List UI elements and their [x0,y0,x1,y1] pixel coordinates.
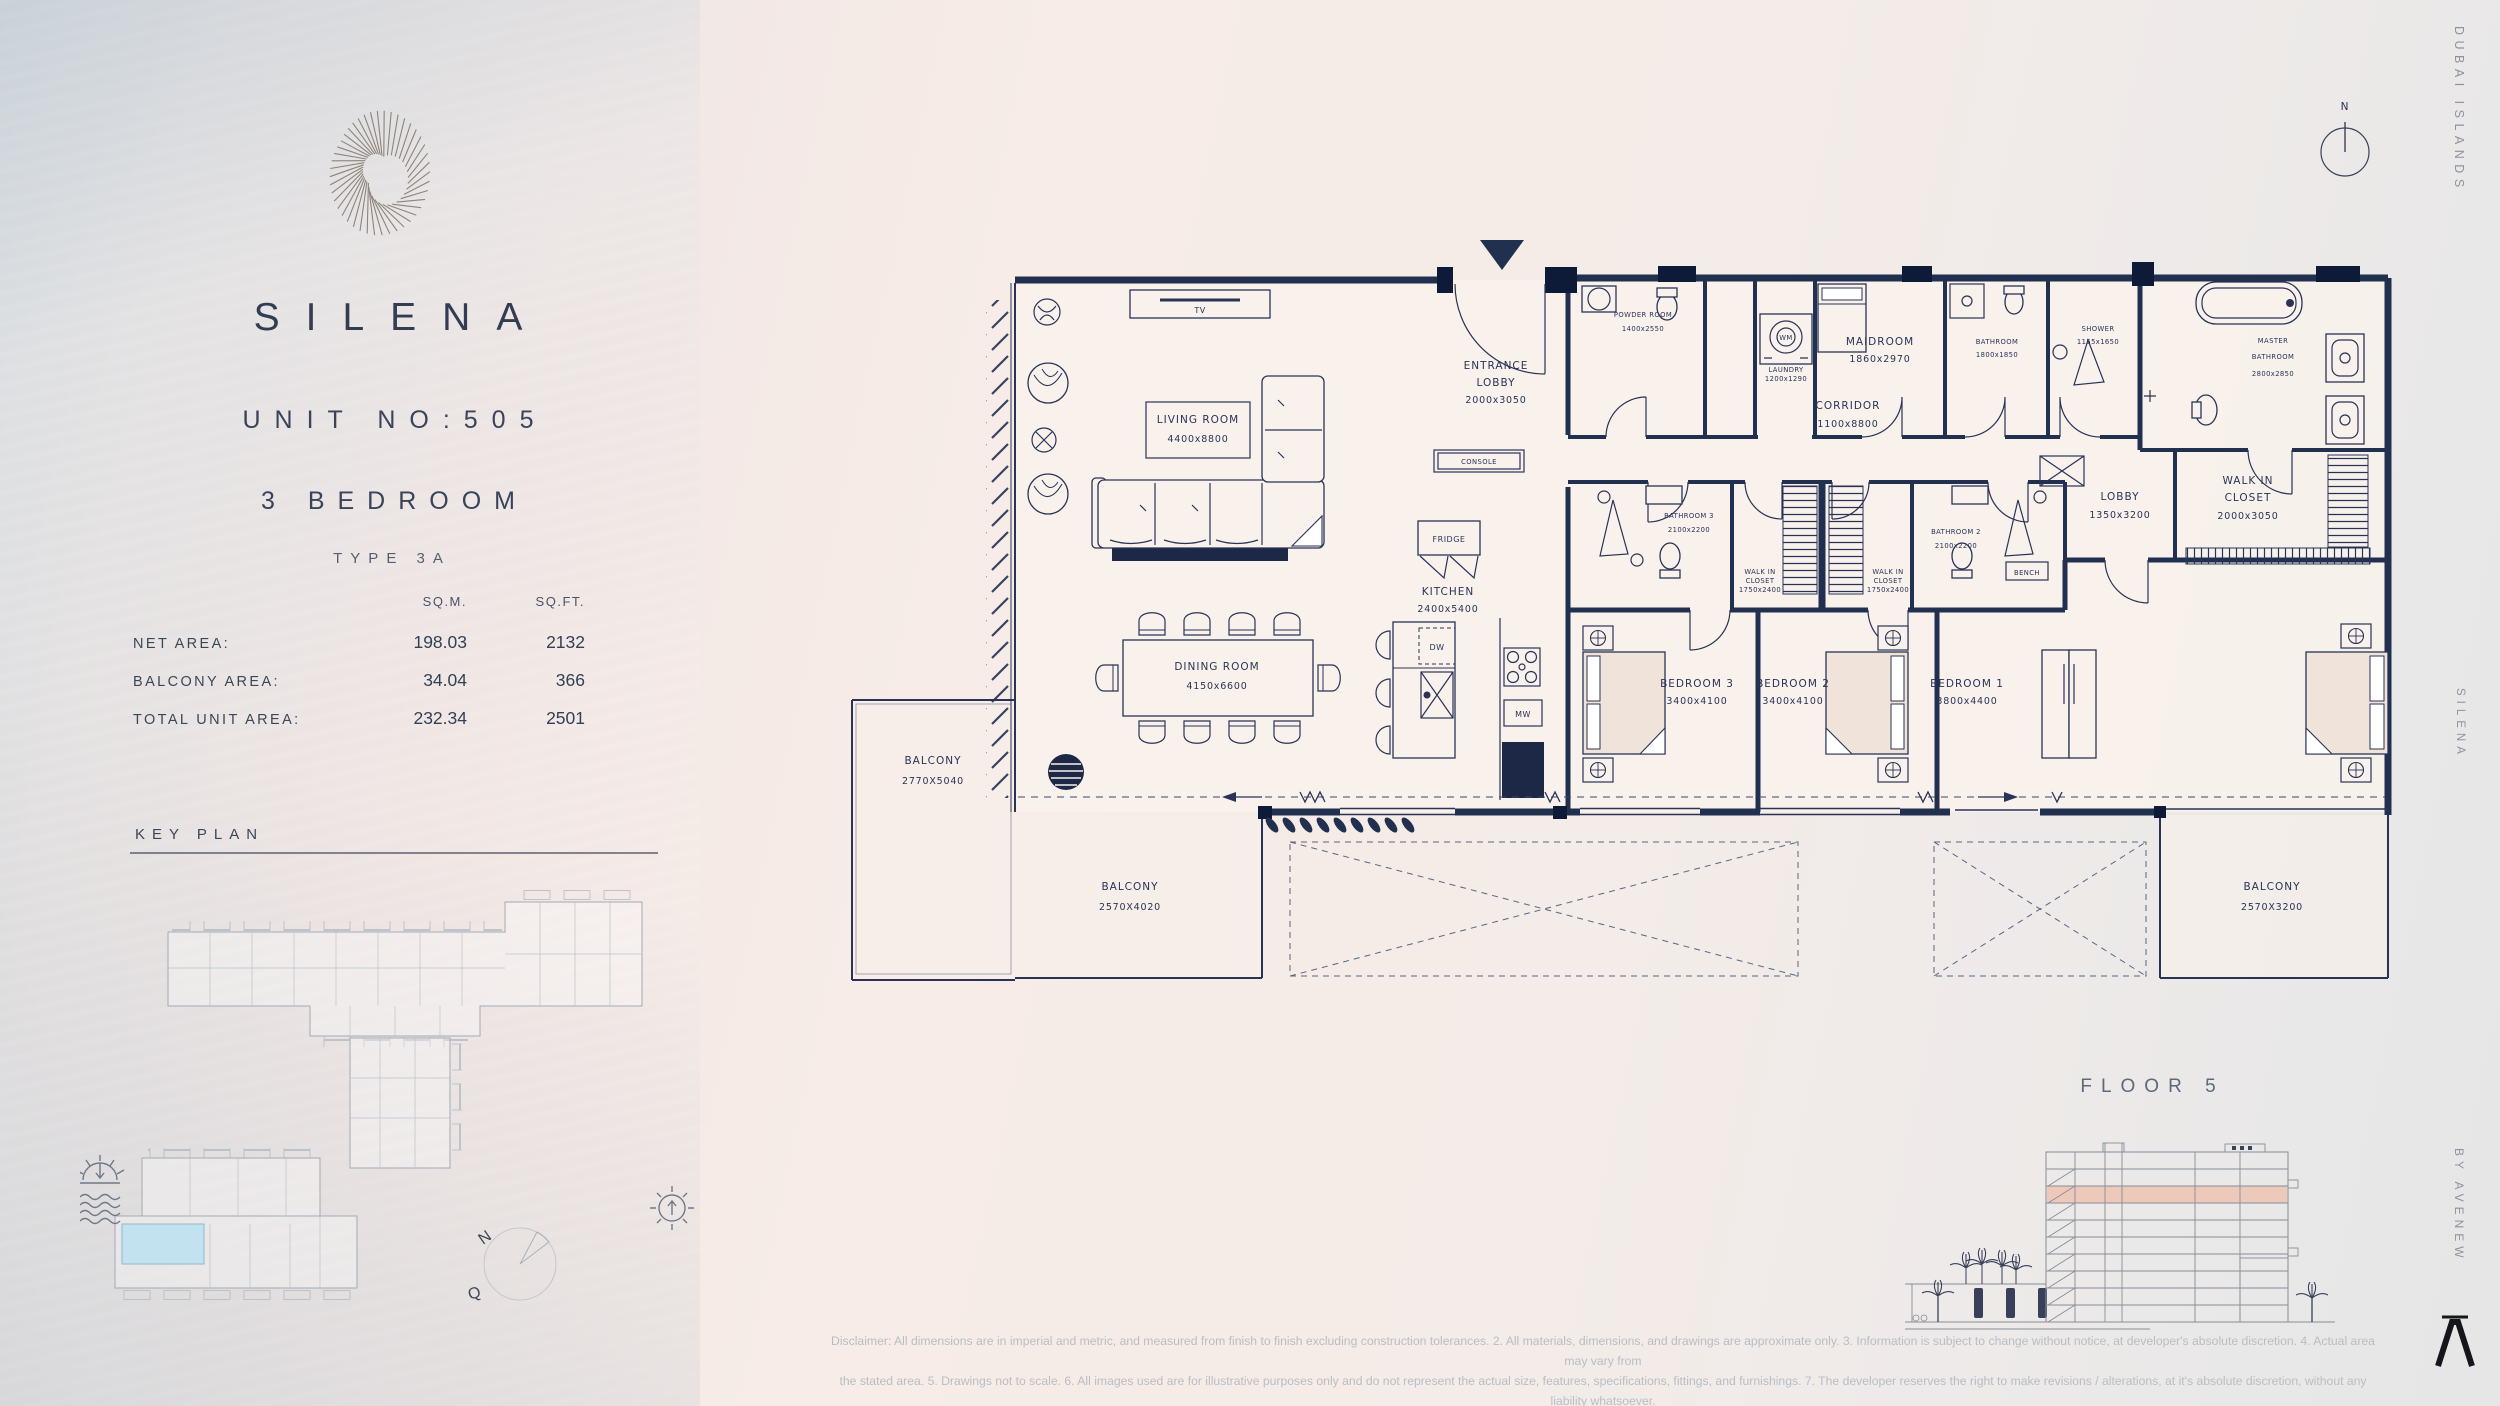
svg-text:CLOSET: CLOSET [1746,577,1775,585]
area-table-header: SQ.M. SQ.FT. [133,594,585,632]
svg-text:2770X5040: 2770X5040 [902,776,964,787]
north-label: N [2341,101,2350,113]
shower-label: SHOWER [2082,325,2115,333]
svg-text:1750x2400: 1750x2400 [1739,586,1781,594]
tv-label: TV [1193,306,1205,315]
wm-label: WM [1779,334,1792,342]
svg-text:1350x3200: 1350x3200 [2089,510,2150,521]
svg-text:1800x1850: 1800x1850 [1976,351,2018,359]
svg-text:1155x1650: 1155x1650 [2077,338,2119,346]
page-title: SILENA [128,296,648,340]
floor-number-label: FLOOR 5 [2053,1076,2243,1098]
disclaimer: Disclaimer: All dimensions are in imperi… [820,1331,2386,1406]
bedroom1-label: BEDROOM 1 [1930,678,2004,690]
lobby-label: LOBBY [2101,491,2140,503]
svg-text:1860x2970: 1860x2970 [1849,354,1910,365]
key-plan-drawing: N Q [80,880,700,1350]
key-plan-building-upper [168,890,642,1168]
side-text-by-avenew: BY AVENEW [2452,1148,2466,1263]
living-room-label: LIVING ROOM [1157,414,1239,426]
planter [1048,754,1084,790]
laundry-label: LAUNDRY [1768,366,1804,374]
key-plan-divider [130,852,658,854]
compass-n-label: N [476,1228,495,1249]
svg-text:1200x1290: 1200x1290 [1765,375,1807,383]
maidroom-label: MAIDROOM [1846,336,1914,348]
wic2-label: WALK IN [1872,568,1903,576]
silena-logo [300,92,452,248]
svg-text:2000x3050: 2000x3050 [1465,395,1526,406]
kitchen-label: KITCHEN [1422,586,1475,598]
svg-text:1750x2400: 1750x2400 [1867,586,1909,594]
balcony-right-label: BALCONY [2243,881,2300,893]
svg-text:2100x2200: 2100x2200 [1668,526,1710,534]
floor-plan: N [820,60,2450,1020]
corridor-label: CORRIDOR [1816,400,1881,412]
building-elevation [1900,1130,2350,1335]
sunrise-icon [650,1186,694,1230]
svg-text:2570X4020: 2570X4020 [1099,902,1161,913]
col-sqm: SQ.M. [355,594,467,609]
svg-text:2400x5400: 2400x5400 [1417,604,1478,615]
wic1-label: WALK IN [1744,568,1775,576]
side-text-silena: SILENA [2454,688,2466,759]
bedroom3-label: BEDROOM 3 [1660,678,1734,690]
planter-row [1263,815,1416,834]
table-row: TOTAL UNIT AREA: 232.34 2501 [133,708,585,746]
master-bathroom-label: MASTER [2258,337,2288,345]
bench-label: BENCH [2014,569,2040,577]
bathroom3-label: BATHROOM 3 [1664,512,1714,520]
area-table: SQ.M. SQ.FT. NET AREA: 198.03 2132 BALCO… [133,594,585,746]
key-plan-compass: N Q [466,1228,556,1304]
svg-text:4400x8800: 4400x8800 [1167,434,1228,445]
floorplan-sheet: SILENA UNIT NO:505 3 BEDROOM TYPE 3A SQ.… [0,0,2500,1406]
bathroom-label: BATHROOM [1976,338,2019,346]
disclaimer-line2: the stated area. 5. Drawings not to scal… [820,1371,2386,1406]
master-wic-label: WALK IN [2222,475,2273,487]
fridge-label: FRIDGE [1433,535,1466,544]
svg-text:3800x4400: 3800x4400 [1936,696,1997,707]
svg-text:2100x2200: 2100x2200 [1935,542,1977,550]
key-plan-pool [122,1224,204,1264]
highlighted-floor [2047,1186,2287,1203]
svg-text:CLOSET: CLOSET [1874,577,1903,585]
svg-text:2800x2850: 2800x2850 [2252,370,2294,378]
north-compass: N [2321,101,2369,176]
bedroom2-label: BEDROOM 2 [1756,678,1830,690]
bathroom2-label: BATHROOM 2 [1931,528,1981,536]
entrance-arrow [1480,240,1524,270]
mw-label: MW [1515,710,1531,719]
unit-number: UNIT NO:505 [108,406,668,435]
rug [1112,548,1288,561]
key-plan-title: KEY PLAN [135,826,264,843]
balcony-left-label: BALCONY [904,755,961,767]
dw-label: DW [1429,643,1444,652]
svg-text:2000x3050: 2000x3050 [2217,511,2278,522]
powder-room-label: POWDER ROOM [1614,311,1672,319]
svg-text:1100x8800: 1100x8800 [1817,419,1878,430]
svg-text:CLOSET: CLOSET [2225,492,2272,504]
balcony-bottom-label: BALCONY [1101,881,1158,893]
col-sqft: SQ.FT. [467,594,585,609]
svg-text:3400x4100: 3400x4100 [1666,696,1727,707]
svg-text:4150x6600: 4150x6600 [1186,681,1247,692]
svg-text:BATHROOM: BATHROOM [2252,353,2295,361]
svg-text:2570X3200: 2570X3200 [2241,902,2303,913]
facade-hatch [986,300,1012,798]
table-row: BALCONY AREA: 34.04 366 [133,670,585,708]
dining-room-label: DINING ROOM [1174,661,1259,673]
svg-text:3400x4100: 3400x4100 [1762,696,1823,707]
svg-text:1400x2550: 1400x2550 [1622,325,1664,333]
compass-q-label: Q [466,1284,483,1304]
entrance-lobby-label: ENTRANCE [1464,360,1529,372]
bedroom-count: 3 BEDROOM [108,487,668,516]
key-plan-building-lower [115,1148,358,1300]
unit-type: TYPE 3A [108,550,668,567]
table-row: NET AREA: 198.03 2132 [133,632,585,670]
svg-text:LOBBY: LOBBY [1477,377,1516,389]
side-text-dubai-islands: DUBAI ISLANDS [2452,26,2466,193]
avenew-logo [2428,1314,2482,1370]
console-label: CONSOLE [1461,458,1497,466]
sunset-icon [80,1155,124,1224]
disclaimer-line1: Disclaimer: All dimensions are in imperi… [820,1331,2386,1371]
